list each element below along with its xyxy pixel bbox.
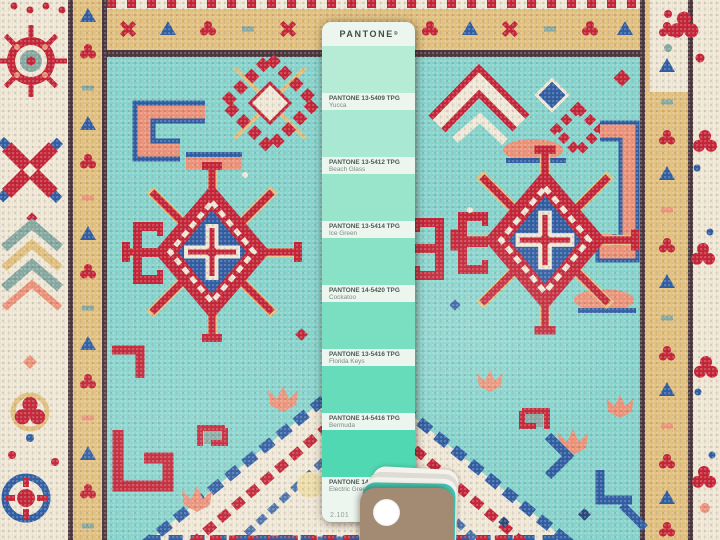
pantone-logo: PANTONE® bbox=[322, 22, 415, 46]
chip-code: PANTONE 13-5414 TPG bbox=[329, 223, 415, 230]
chip-code: PANTONE 13-5412 TPG bbox=[329, 159, 415, 166]
chip-label: PANTONE 13-5416 TPG Florida Keys bbox=[322, 349, 415, 366]
color-chip bbox=[322, 110, 415, 157]
corner-medallion-motif bbox=[5, 477, 47, 519]
chip-name: Cockatoo bbox=[329, 294, 415, 301]
chip-code: PANTONE 13-5409 TPG bbox=[329, 95, 415, 102]
chip-label: PANTONE 14-5420 TPG Cockatoo bbox=[322, 285, 415, 302]
chip-code: PANTONE 14-5420 TPG bbox=[329, 287, 415, 294]
chip-label: PANTONE 13-5414 TPG Ice Green bbox=[322, 221, 415, 238]
color-chip bbox=[322, 366, 415, 413]
color-chip bbox=[322, 302, 415, 349]
color-chip bbox=[322, 174, 415, 221]
chip-name: Florida Keys bbox=[329, 358, 415, 365]
color-chip bbox=[322, 238, 415, 285]
chip-code: PANTONE 13-5416 TPG bbox=[329, 351, 415, 358]
page-number: 2.101 bbox=[330, 512, 349, 519]
chip-name: Beach Glass bbox=[329, 166, 415, 173]
fan-card-top bbox=[360, 488, 454, 540]
photo-scene: PANTONE® PANTONE 13-5409 TPG Yucca PANTO… bbox=[0, 0, 720, 540]
chip-name: Ice Green bbox=[329, 230, 415, 237]
chip-name: Bermuda bbox=[329, 422, 415, 429]
chip-label: PANTONE 13-5409 TPG Yucca bbox=[322, 93, 415, 110]
chip-name: Yucca bbox=[329, 102, 415, 109]
card-hole bbox=[373, 499, 400, 526]
chip-code: PANTONE 14-5416 TPG bbox=[329, 415, 415, 422]
registered-mark: ® bbox=[394, 31, 398, 37]
brand-text: PANTONE bbox=[339, 29, 393, 39]
chip-label: PANTONE 13-5412 TPG Beach Glass bbox=[322, 157, 415, 174]
color-chip bbox=[322, 46, 415, 93]
pantone-guide-strip: PANTONE® PANTONE 13-5409 TPG Yucca PANTO… bbox=[322, 22, 415, 522]
chip-label: PANTONE 14-5416 TPG Bermuda bbox=[322, 413, 415, 430]
